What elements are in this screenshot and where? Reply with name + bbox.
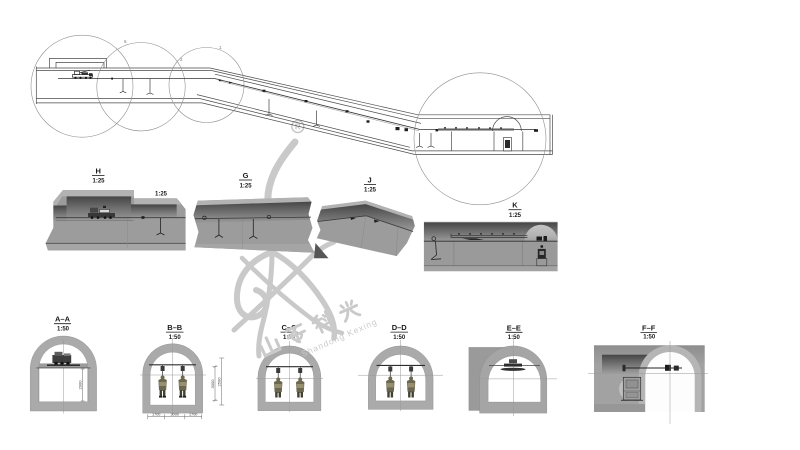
svg-text:2500: 2500 [217, 377, 222, 387]
svg-text:1:25: 1:25 [155, 192, 168, 198]
svg-text:F–F: F–F [642, 324, 656, 333]
svg-text:A–A: A–A [55, 315, 71, 324]
svg-text:1:50: 1:50 [393, 335, 406, 341]
svg-text:3000: 3000 [210, 379, 215, 389]
svg-text:1:50: 1:50 [169, 335, 182, 341]
svg-text:2000: 2000 [77, 380, 82, 390]
svg-text:1:25: 1:25 [364, 188, 377, 194]
svg-text:1:50: 1:50 [643, 335, 656, 341]
svg-text:1700: 1700 [189, 413, 197, 417]
svg-text:3000: 3000 [170, 413, 178, 417]
svg-text:K: K [512, 201, 518, 210]
svg-text:1: 1 [219, 45, 222, 50]
svg-text:2: 2 [180, 57, 183, 62]
svg-text:6: 6 [124, 39, 127, 44]
svg-text:1:25: 1:25 [240, 183, 253, 189]
svg-text:1700: 1700 [152, 413, 160, 417]
svg-text:1:25: 1:25 [509, 213, 522, 219]
svg-text:1:50: 1:50 [508, 335, 521, 341]
svg-text:B–B: B–B [167, 323, 183, 332]
svg-text:Shandong Kexing: Shandong Kexing [300, 316, 379, 359]
svg-text:D–D: D–D [392, 323, 408, 332]
svg-text:E–E: E–E [507, 323, 521, 332]
svg-text:H: H [95, 167, 100, 176]
svg-text:J: J [368, 175, 372, 184]
svg-text:1:25: 1:25 [92, 179, 105, 185]
svg-text:G: G [243, 171, 249, 180]
svg-text:1:50: 1:50 [57, 327, 70, 333]
